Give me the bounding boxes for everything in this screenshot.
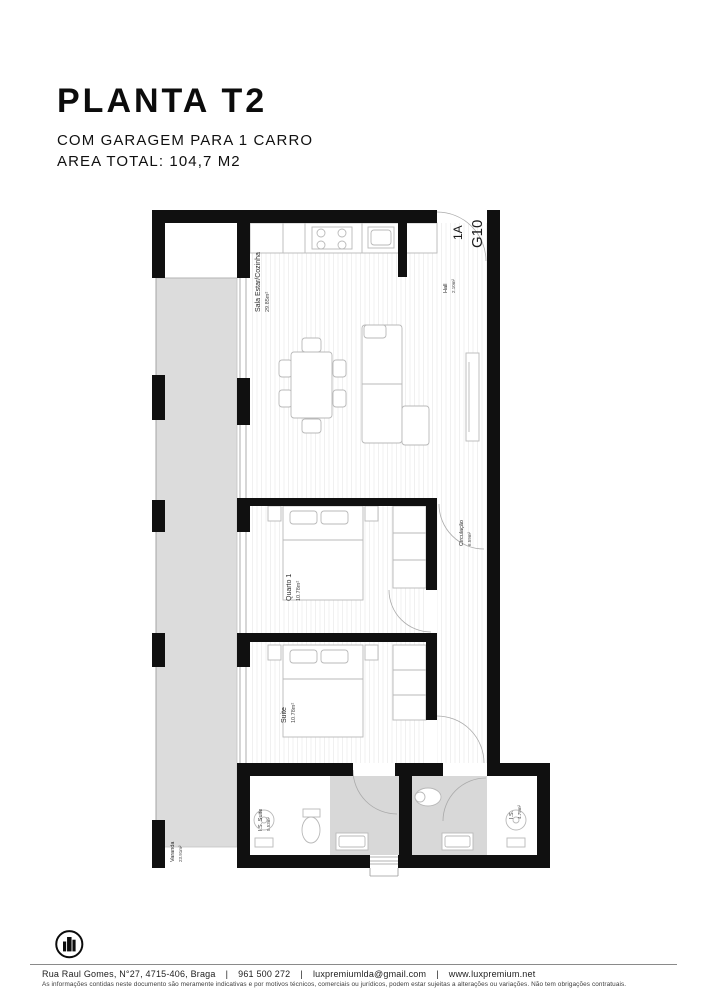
contact-line: Rua Raul Gomes, N°27, 4715-406, Braga|96…	[42, 969, 535, 979]
wall-segment	[398, 223, 407, 277]
separator: |	[226, 969, 229, 979]
wall-segment	[152, 375, 165, 420]
wall-segment	[152, 210, 165, 278]
wall-segment	[237, 378, 250, 425]
washbasin	[254, 810, 274, 830]
wall-segment	[399, 763, 412, 867]
wall-segment	[537, 763, 550, 868]
room-label-suite: Suite	[281, 707, 288, 723]
room-label-quarto1: Quarto 1	[286, 574, 293, 601]
wall-segment	[152, 210, 437, 223]
footer-rule	[30, 964, 677, 965]
room-area-quarto1: 10.78m²	[296, 581, 302, 601]
wall-segment	[487, 210, 500, 776]
email-link[interactable]: luxpremiumlda@gmail.com	[313, 969, 426, 979]
wall-segment	[237, 633, 433, 642]
building-icon	[63, 937, 76, 951]
floor-plan: 1A G10 Sala Estar/Cozinha 29.85m² Hall 2…	[0, 0, 707, 1000]
bed-quarto1	[268, 506, 378, 600]
room-label-is: I.S.	[509, 810, 515, 819]
unit-garage-label: G10	[469, 220, 486, 248]
room-area-varanda: 23.91m²	[178, 845, 183, 862]
wall-segment	[237, 498, 437, 506]
tv-unit	[466, 353, 479, 441]
room-label-hall: Hall	[443, 284, 449, 293]
nightstand	[268, 645, 281, 660]
separator: |	[300, 969, 303, 979]
room-area-hall: 2.10m²	[451, 278, 456, 293]
toilet	[303, 809, 320, 817]
kitchen-counter	[250, 223, 437, 253]
brochure-page: PLANTA T2 COM GARAGEM PARA 1 CARRO AREA …	[0, 0, 707, 1000]
room-label-is-suite: I.S. Suite	[258, 809, 264, 831]
wall-segment	[250, 763, 353, 776]
website-link[interactable]: www.luxpremium.net	[449, 969, 536, 979]
room-area-is: 4.75m²	[517, 804, 522, 819]
disclaimer-text: As informações contidas neste documento …	[42, 981, 626, 988]
nightstand	[365, 645, 378, 660]
nightstand	[365, 506, 378, 521]
room-label-sala: Sala Estar/Cozinha	[255, 252, 262, 312]
room-area-circulacao: 6.59m²	[467, 531, 472, 546]
room-area-is-suite: 5.53m²	[266, 816, 271, 831]
unit-fraction-label: 1A	[451, 225, 465, 240]
lux-premium-logo	[42, 928, 282, 964]
wall-segment	[426, 498, 437, 590]
room-area-sala: 29.85m²	[265, 292, 271, 312]
wardrobe-suite	[393, 645, 426, 720]
wall-segment	[237, 855, 370, 868]
room-label-circulacao: Circulação	[459, 520, 465, 546]
nightstand	[268, 506, 281, 521]
wall-segment	[237, 763, 250, 868]
balcony-floor	[156, 278, 237, 847]
wall-segment	[152, 633, 165, 667]
room-area-suite: 10.78m²	[291, 703, 297, 723]
room-label-varanda: Varanda	[170, 841, 176, 862]
address-text: Rua Raul Gomes, N°27, 4715-406, Braga	[42, 969, 216, 979]
wall-segment	[152, 820, 165, 868]
wardrobe-quarto1	[393, 506, 426, 588]
phone-text: 961 500 272	[238, 969, 290, 979]
separator: |	[436, 969, 439, 979]
wall-segment	[237, 210, 250, 278]
wall-segment	[152, 500, 165, 532]
wall-segment	[426, 633, 437, 720]
dining-table	[291, 352, 332, 418]
wall-segment	[398, 855, 550, 868]
